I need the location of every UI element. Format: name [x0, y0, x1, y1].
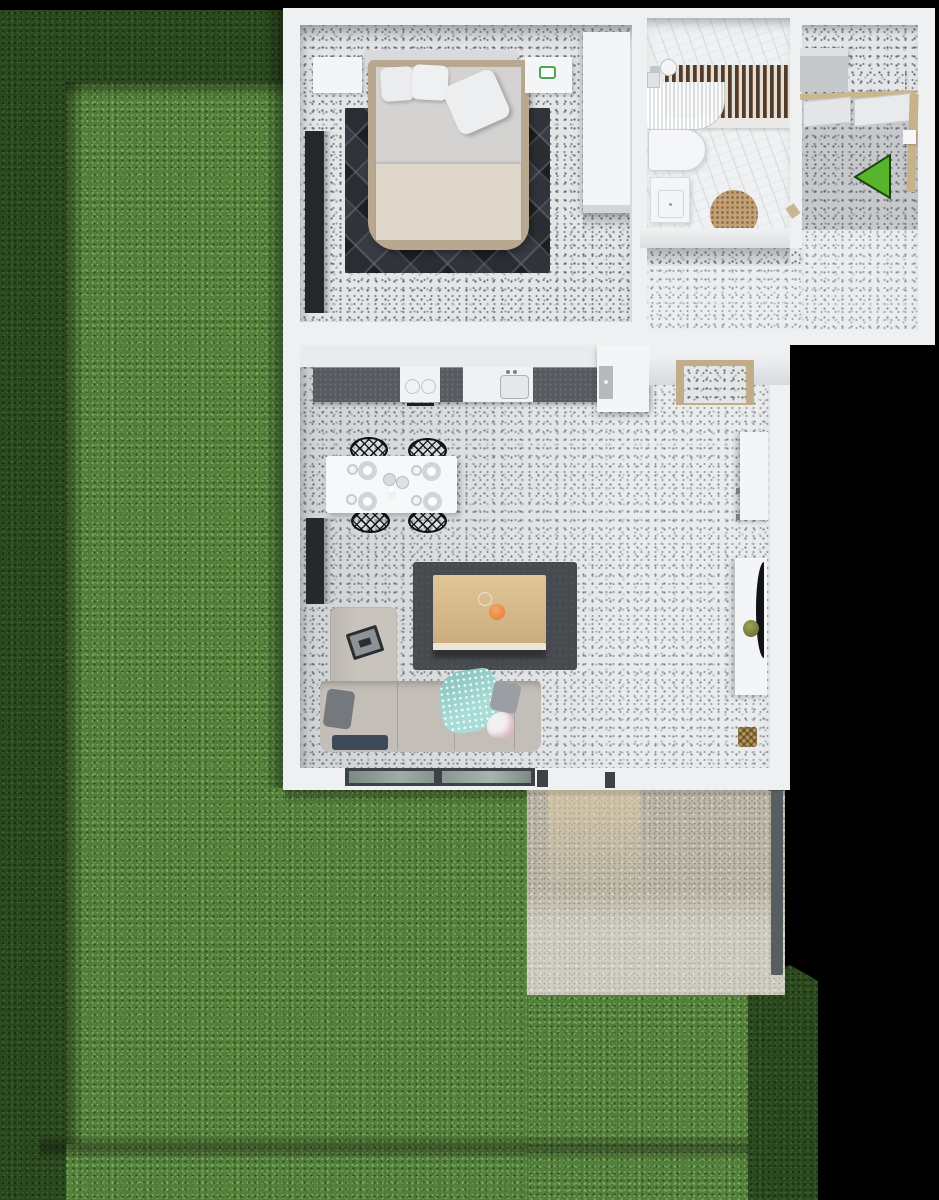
drinking-glass — [346, 494, 357, 505]
bathroom — [647, 18, 790, 228]
washer-knob — [669, 203, 672, 206]
sink-faucet — [506, 370, 510, 374]
sideboard — [740, 432, 768, 520]
kitchen-counter-mid — [440, 367, 463, 402]
entrance-arrow-icon — [853, 153, 893, 201]
coffee-table-front-edge — [433, 643, 546, 650]
hall-passage-frame — [676, 360, 754, 405]
plate — [358, 492, 377, 511]
sideboard-handle — [736, 488, 740, 494]
building-shadow-left — [265, 10, 285, 788]
carafe — [383, 473, 396, 486]
drinking-glass — [411, 465, 422, 476]
patio-drain-post — [771, 788, 783, 975]
lawn-shadow-bottom — [40, 1134, 750, 1160]
decor-ring — [478, 592, 492, 606]
wardrobe-floor-shadow — [583, 213, 630, 231]
entry-floor-light — [802, 230, 918, 330]
patio-light-lower — [527, 888, 785, 995]
pillow — [380, 66, 415, 102]
plate — [423, 492, 442, 511]
living-tv-shadow — [324, 518, 332, 604]
shower-head — [660, 59, 677, 76]
bathtub — [647, 82, 725, 130]
counter-shadow — [313, 402, 597, 408]
window-glass — [442, 771, 531, 783]
bedroom-tv-shadow — [324, 131, 332, 313]
sofa-seam — [397, 683, 398, 750]
kitchen-backsplash — [300, 345, 597, 367]
plate — [358, 461, 377, 480]
closet-door-panel — [854, 93, 911, 127]
sink-basin — [500, 375, 529, 399]
bathroom-south-wall — [640, 228, 790, 248]
window-glass — [349, 771, 434, 783]
hedge-left — [0, 10, 66, 1200]
toilet — [648, 129, 706, 171]
appliance-knob — [604, 380, 608, 384]
radio-device — [539, 66, 556, 79]
hedge-bottom-right — [748, 965, 818, 1200]
drinking-glass — [411, 495, 422, 506]
oven-handle — [407, 403, 434, 406]
kitchen-counter-left — [313, 367, 400, 402]
hall-passage-floor — [684, 366, 746, 403]
dresser — [313, 57, 362, 93]
hedge-top — [0, 10, 285, 82]
door-post — [537, 770, 548, 787]
kitchen-counter-right — [533, 367, 597, 402]
drinking-glass — [347, 464, 358, 475]
cooktop-burner-right — [421, 379, 436, 394]
sofa-cushion-navy — [332, 735, 388, 750]
sofa-pillow-dark — [322, 688, 355, 730]
salt-shaker — [389, 487, 394, 492]
living-tv-panel — [306, 518, 324, 604]
wardrobe — [583, 32, 630, 213]
plush-toy — [487, 712, 514, 738]
wardrobe-base — [583, 205, 630, 213]
closet-door-panel — [803, 96, 851, 127]
wall-switch — [903, 130, 916, 144]
building-shadow-bottom — [285, 788, 527, 804]
orange-bowl — [489, 604, 505, 620]
hallway-wall-shadow — [647, 248, 790, 266]
plant-ball — [743, 620, 759, 637]
plate — [422, 462, 441, 481]
patio-door-light-streak — [548, 786, 640, 898]
bedroom-tv-panel — [305, 131, 324, 313]
hedge-shadow-vertical — [66, 82, 84, 1144]
hedge-shadow-horizontal — [66, 82, 285, 98]
floor-plan-scene — [0, 0, 939, 1200]
entry-wardrobe — [800, 48, 848, 92]
door-post — [605, 772, 615, 788]
carafe — [396, 476, 409, 489]
bath-round-rug — [710, 190, 758, 228]
shower-valve — [647, 72, 660, 88]
duvet-lower — [376, 164, 521, 240]
cooktop-burner-left — [405, 379, 420, 394]
entry-hall — [802, 25, 918, 330]
storage-basket — [738, 727, 757, 747]
